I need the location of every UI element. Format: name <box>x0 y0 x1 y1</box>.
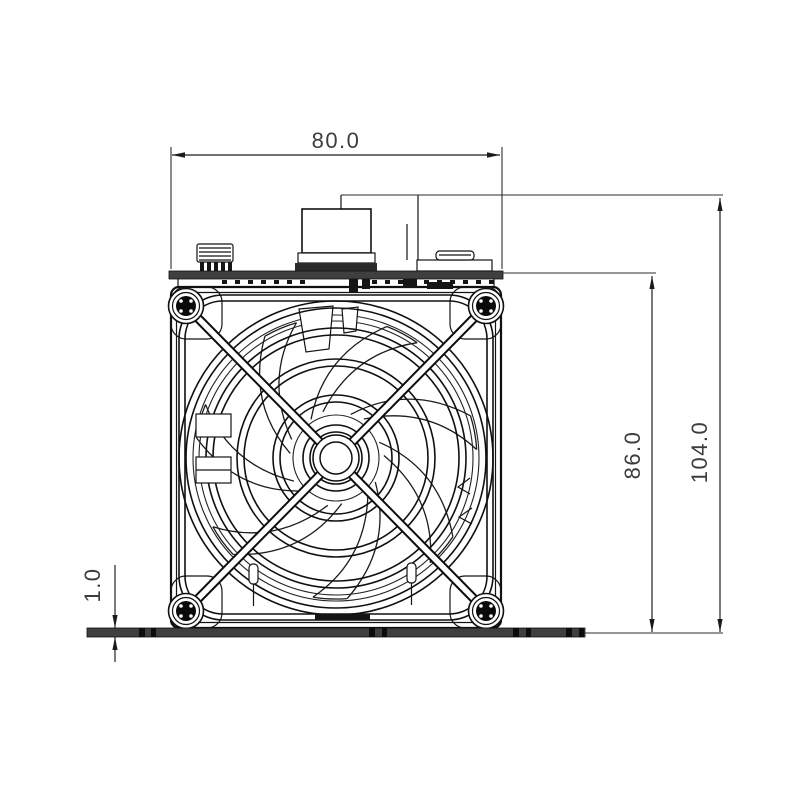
top-assembly <box>169 195 503 292</box>
chevron-detail <box>459 508 472 524</box>
capacitor-base <box>298 253 375 263</box>
dimension-overall-height-label: 104.0 <box>687 421 712 484</box>
arrowhead-bottom <box>649 619 654 632</box>
arrowhead-bottom <box>112 637 117 650</box>
guard-clip <box>407 563 416 583</box>
fan-technical-drawing: 80.0 86.0 104.0 1.0 <box>0 0 800 800</box>
dimension-body-height-label: 86.0 <box>620 431 645 480</box>
dimension-body-height: 86.0 <box>503 273 656 632</box>
dimension-plate-thickness: 1.0 <box>80 565 118 662</box>
dimension-width-label: 80.0 <box>312 128 361 153</box>
solder-ticks <box>222 279 494 292</box>
screw <box>169 594 204 629</box>
arrowhead-bottom <box>717 619 722 632</box>
side-tab <box>196 414 231 437</box>
base-plate-bar <box>87 628 585 637</box>
dimension-plate-thickness-label: 1.0 <box>80 567 105 602</box>
screw <box>469 289 504 324</box>
arrowhead-top <box>717 198 722 211</box>
dimension-overall-height: 104.0 <box>341 195 723 633</box>
arrowhead-top <box>112 615 117 628</box>
screw <box>469 594 504 629</box>
guard-bottom-tab <box>315 614 370 620</box>
terminal-connector <box>197 244 233 271</box>
switch-component <box>417 251 492 271</box>
arrowhead-left <box>172 152 185 157</box>
capacitor-base-bar <box>295 263 377 271</box>
arrowhead-right <box>487 152 500 157</box>
drawing-page: 80.0 86.0 104.0 1.0 <box>0 0 800 800</box>
guard-clip <box>249 564 258 584</box>
capacitor-box <box>302 209 371 253</box>
arrowhead-top <box>649 276 654 289</box>
top-plate <box>169 271 503 279</box>
base-plate <box>87 628 585 637</box>
screw <box>169 289 204 324</box>
